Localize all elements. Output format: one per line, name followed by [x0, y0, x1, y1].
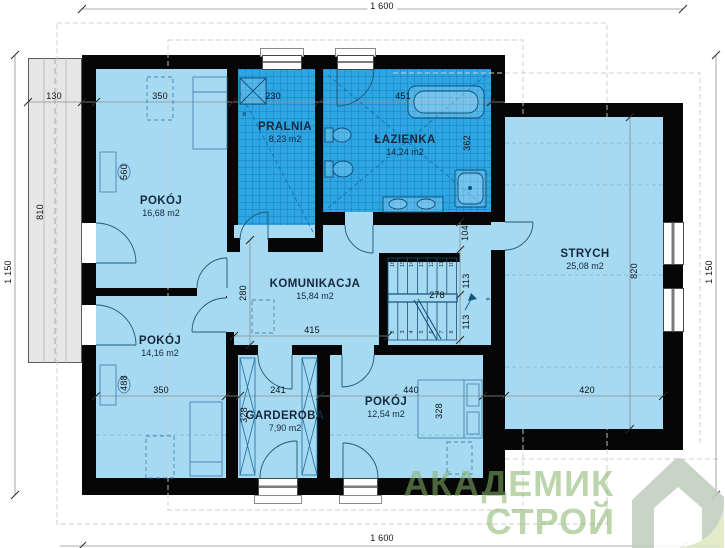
window-lazienka	[337, 55, 374, 70]
stair-tread-number: 8	[449, 330, 455, 333]
room-area: 25,08 m2	[560, 262, 609, 273]
dim-pokoj2-depth: 488	[119, 375, 129, 391]
stair-winder-number: 9	[486, 297, 492, 300]
room-area: 15,84 m2	[270, 292, 361, 303]
room-label-lazienka: ŁAZIENKA 14,24 m2	[374, 133, 435, 159]
dim-lazienka-width: 451	[395, 91, 411, 101]
washer-label: w	[242, 112, 248, 116]
stair-tread-number: 14	[409, 261, 415, 267]
window-sill-garderoba	[254, 495, 302, 504]
stair-tread-number: 4	[409, 330, 415, 333]
balcony-door-pokoj1	[82, 223, 96, 263]
window-strych-2	[663, 288, 684, 332]
dim-overall-right: 1 150	[704, 260, 714, 284]
dim-balcony-length: 810	[35, 204, 45, 220]
balcony-door-pokoj2	[82, 305, 96, 345]
stair-tread-number: 7	[439, 330, 445, 333]
door-opening-pokoj1	[197, 288, 227, 296]
dim-pokoj1-width: 350	[152, 91, 168, 101]
dim-komunikacja-depth: 280	[238, 285, 248, 301]
door-opening-lazienka	[345, 212, 373, 225]
stair-tread-number: 15	[400, 261, 406, 267]
room-name: KOMUNIKACJA	[270, 277, 361, 291]
room-label-pokoj1: POKÓJ 16,68 m2	[140, 194, 182, 220]
dim-pokoj3-width: 440	[403, 385, 419, 395]
dim-strych-door: 104	[460, 225, 470, 241]
dim-pokoj1-depth: 560	[119, 164, 129, 180]
stair-tread-number: 13	[419, 261, 425, 267]
room-floor-pokoj1	[96, 69, 227, 288]
stair-tread-number: 11	[439, 261, 445, 267]
door-opening-strych	[491, 222, 505, 250]
wall-pralnia-right-lower	[315, 212, 323, 252]
dim-balcony-width: 130	[46, 91, 62, 101]
room-area: 14,16 m2	[139, 349, 181, 360]
room-name: PRALNIA	[258, 120, 312, 134]
door-opening-pokoj2	[226, 298, 234, 332]
door-opening-pokoj3	[342, 345, 374, 355]
room-name: ŁAZIENKA	[374, 133, 435, 147]
room-area: 8,23 m2	[258, 135, 312, 146]
dim-strych-depth: 820	[629, 263, 639, 279]
window-pralnia	[262, 55, 302, 70]
stair-tread-number: 10	[449, 261, 455, 267]
stair-tread-number: 16	[390, 261, 396, 267]
room-floor-strych	[505, 117, 663, 429]
dim-stairs-run-upper: 113	[461, 274, 471, 289]
watermark-line2: СТРОЙ	[485, 504, 615, 540]
dim-overall-left: 1 150	[3, 260, 13, 284]
room-label-komunikacja: KOMUNIKACJA 15,84 m2	[270, 277, 361, 303]
room-name: POKÓJ	[140, 194, 182, 208]
dim-garderoba-width: 241	[270, 385, 286, 395]
room-area: 16,68 m2	[140, 209, 182, 220]
door-opening-pralnia	[240, 238, 268, 252]
dim-overall-top: 1 600	[367, 1, 397, 11]
room-label-pralnia: PRALNIA 8,23 m2	[258, 120, 312, 146]
dim-strych-width: 420	[579, 385, 595, 395]
dim-pokoj3-depth: 328	[434, 403, 444, 419]
room-area: 7,90 m2	[246, 424, 325, 435]
room-area: 12,54 m2	[365, 410, 407, 421]
dim-komunikacja-width: 415	[304, 325, 320, 335]
dim-garderoba-depth: 328	[239, 407, 249, 423]
dim-pokoj2-width: 350	[153, 385, 169, 395]
watermark-line1: АКАДЕМИК	[403, 466, 614, 502]
room-label-garderoba: GARDEROBA 7,90 m2	[246, 409, 325, 435]
floor-plan-canvas: POKÓJ 16,68 m2 PRALNIA 8,23 m2 ŁAZIENKA …	[0, 0, 725, 548]
room-name: STRYCH	[560, 247, 609, 261]
room-area: 14,24 m2	[374, 148, 435, 159]
dim-overall-bottom: 1 600	[367, 533, 397, 543]
dim-stairs-width: 278	[429, 290, 445, 300]
room-label-pokoj2: POKÓJ 14,16 m2	[139, 334, 181, 360]
window-strych-1	[663, 222, 684, 265]
wall-stairs-left	[379, 253, 388, 348]
room-label-strych: STRYCH 25,08 m2	[560, 247, 609, 273]
dim-stairs-run-lower: 113	[461, 315, 471, 330]
room-label-pokoj3: POKÓJ 12,54 m2	[365, 395, 407, 421]
room-name: POKÓJ	[365, 395, 407, 409]
stair-tread-number: 3	[400, 330, 406, 333]
door-opening-garderoba	[258, 345, 292, 355]
window-sill-pokoj3	[339, 495, 382, 504]
room-name: POKÓJ	[139, 334, 181, 348]
dim-pralnia-width: 230	[265, 91, 281, 101]
stair-tread-number: 6	[429, 330, 435, 333]
dim-lazienka-depth: 362	[462, 135, 472, 151]
stair-tread-number: 5	[419, 330, 425, 333]
stair-tread-number: 2	[390, 330, 396, 333]
room-name: GARDEROBA	[246, 409, 325, 423]
stair-tread-number: 12	[429, 261, 435, 267]
window-garderoba	[258, 478, 298, 496]
window-pokoj3	[343, 478, 378, 496]
